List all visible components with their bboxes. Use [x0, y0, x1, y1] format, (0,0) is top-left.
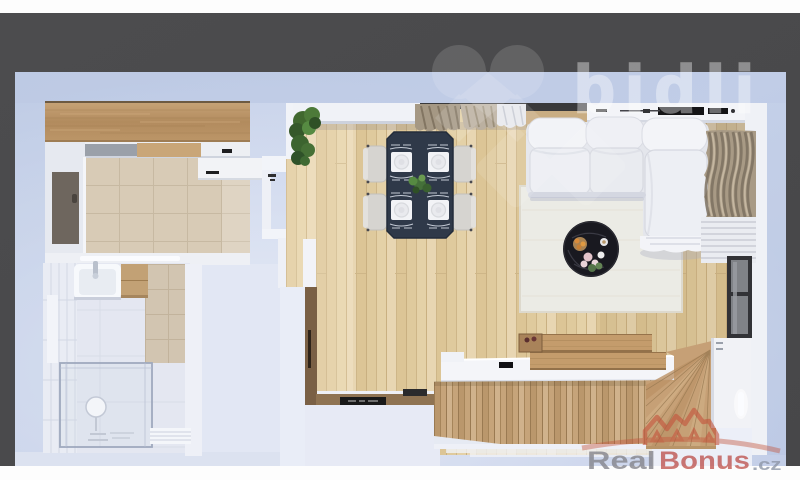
svg-text:.cz: .cz — [752, 455, 782, 474]
svg-text:Bonus: Bonus — [659, 446, 750, 474]
svg-text:bidli: bidli — [574, 52, 764, 127]
svg-text:Real: Real — [587, 447, 656, 475]
